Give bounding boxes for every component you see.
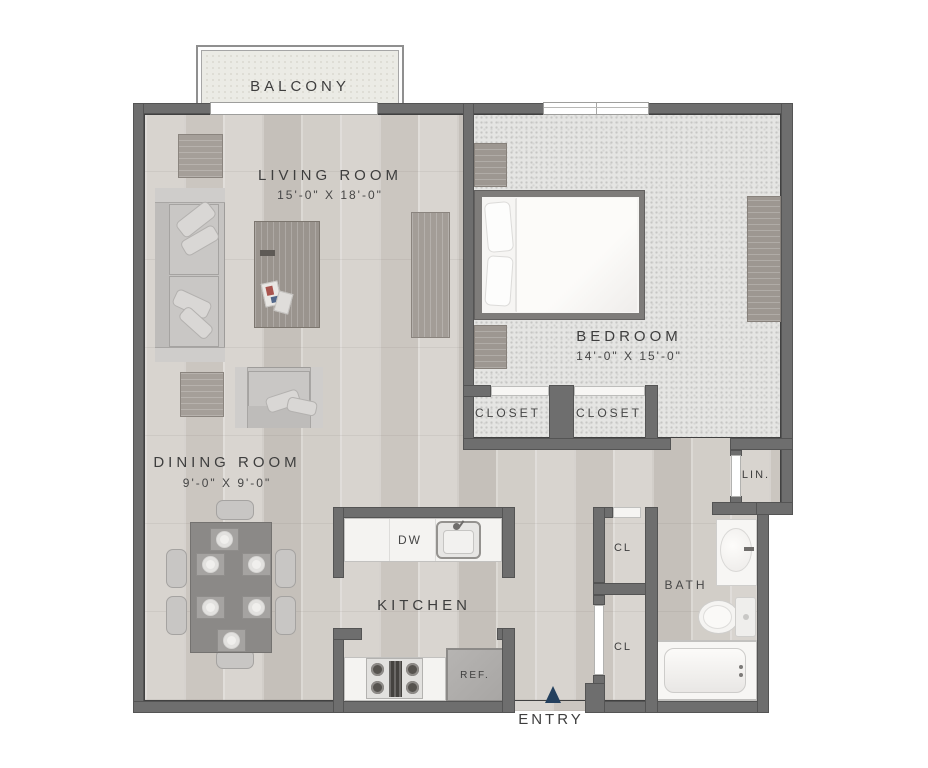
coffee-table-slot	[260, 250, 275, 256]
wall-kitchen-left-lower	[333, 628, 344, 713]
wall-bottom-left	[133, 701, 513, 713]
toilet-seat	[703, 605, 732, 629]
place-setting	[242, 553, 271, 576]
magazine-art	[265, 286, 274, 296]
stove-burner	[406, 681, 419, 694]
dining-chair	[275, 549, 296, 588]
bedroom-label: BEDROOM	[547, 329, 711, 346]
window-mullion	[544, 107, 648, 108]
bathtub-basin	[664, 648, 746, 693]
sofa-back	[155, 203, 169, 347]
loveseat-arm-right	[310, 367, 323, 428]
plate	[202, 556, 219, 573]
bed-blanket	[515, 198, 637, 312]
place-setting	[242, 596, 271, 619]
hall-closet2-door	[594, 605, 604, 675]
stove-burner	[371, 681, 384, 694]
nightstand-lower	[474, 325, 507, 369]
tank-button	[743, 614, 749, 620]
plate	[216, 531, 233, 548]
bedroom-dims: 14'-0" X 15'-0"	[547, 350, 711, 363]
wall-bedroom-south	[463, 438, 671, 450]
wall-bottom-right	[585, 701, 769, 713]
end-table-upper	[178, 134, 223, 178]
wall-bath-left	[645, 507, 658, 713]
balcony-label: BALCONY	[250, 79, 350, 96]
hall-closet2-label: CL	[603, 641, 643, 653]
loveseat-arm-left	[235, 367, 248, 428]
closet-door-left	[491, 386, 549, 396]
end-table-lower	[180, 372, 224, 417]
bed-pillow	[484, 255, 513, 307]
stove	[366, 658, 423, 699]
living-room-dims: 15'-0" X 18'-0"	[230, 189, 430, 202]
toilet-tank	[735, 597, 756, 637]
hall-closet1-label: CL	[603, 542, 643, 554]
tub-faucet-icon	[739, 665, 743, 669]
wall-kitchen-stub-left	[333, 628, 362, 640]
closet-label-right: CLOSET	[567, 407, 651, 420]
hall-closet1-door	[613, 507, 641, 518]
wall-kitchen-right-lower	[502, 628, 515, 713]
closet-label-left: CLOSET	[466, 407, 550, 420]
entry-arrow-icon	[545, 686, 561, 703]
stove-burner	[406, 663, 419, 676]
nightstand-upper	[474, 143, 507, 187]
exterior-mask	[769, 515, 928, 768]
closet-door-right	[574, 386, 645, 396]
window-mullion	[596, 103, 597, 114]
wall-hall-closet2-left-upper	[593, 595, 605, 605]
plate	[223, 632, 240, 649]
place-setting	[217, 629, 246, 652]
bed-pillow	[484, 201, 514, 253]
sofa-arm-bottom	[155, 347, 225, 362]
plate	[248, 556, 265, 573]
wall-bedroom-west	[463, 103, 474, 450]
wall-left	[133, 103, 144, 713]
floor-plan: BALCONY	[0, 0, 928, 768]
wall-bath-right	[757, 502, 769, 713]
refrigerator-label: REF.	[460, 670, 490, 681]
linen-label: LIN.	[726, 469, 786, 481]
place-setting	[196, 596, 225, 619]
dining-room-dims: 9'-0" X 9'-0"	[137, 477, 317, 490]
dishwasher-label: DW	[390, 534, 430, 547]
faucet-icon	[458, 520, 465, 529]
dining-chair	[166, 596, 187, 635]
plate	[248, 599, 265, 616]
sink-basin	[443, 530, 474, 554]
stove-grate	[389, 661, 402, 697]
wall-right-upper	[781, 103, 793, 515]
tub-faucet-icon	[739, 673, 743, 677]
wall-kitchen-top	[333, 507, 515, 518]
plate	[202, 599, 219, 616]
balcony-door	[210, 102, 378, 115]
dining-chair	[275, 596, 296, 635]
living-room-label: LIVING ROOM	[230, 168, 430, 185]
place-setting	[210, 528, 239, 551]
wall-bedroom-south-right	[730, 438, 793, 450]
kitchen-label: KITCHEN	[363, 598, 485, 615]
dining-room-label: DINING ROOM	[137, 455, 317, 472]
dresser	[747, 196, 781, 322]
stove-burner	[371, 663, 384, 676]
bath-label: BATH	[654, 579, 718, 592]
wall-hall-closet2-bottom-stub	[585, 683, 605, 713]
tv-console	[411, 212, 450, 338]
wall-bath-top	[712, 502, 757, 515]
wall-kitchen-right-upper	[502, 507, 515, 578]
dining-chair	[166, 549, 187, 588]
entry-label: ENTRY	[505, 712, 597, 729]
wall-kitchen-left-upper	[333, 507, 344, 578]
dining-chair	[216, 500, 254, 520]
bedroom-window	[543, 102, 649, 115]
faucet-icon	[744, 547, 754, 551]
refrigerator: REF.	[446, 648, 504, 702]
place-setting	[196, 553, 225, 576]
sofa-arm-top	[155, 188, 225, 203]
kitchen-sink	[436, 521, 481, 559]
wall-closet-top-left	[463, 385, 491, 397]
balcony-area: BALCONY	[196, 45, 404, 110]
